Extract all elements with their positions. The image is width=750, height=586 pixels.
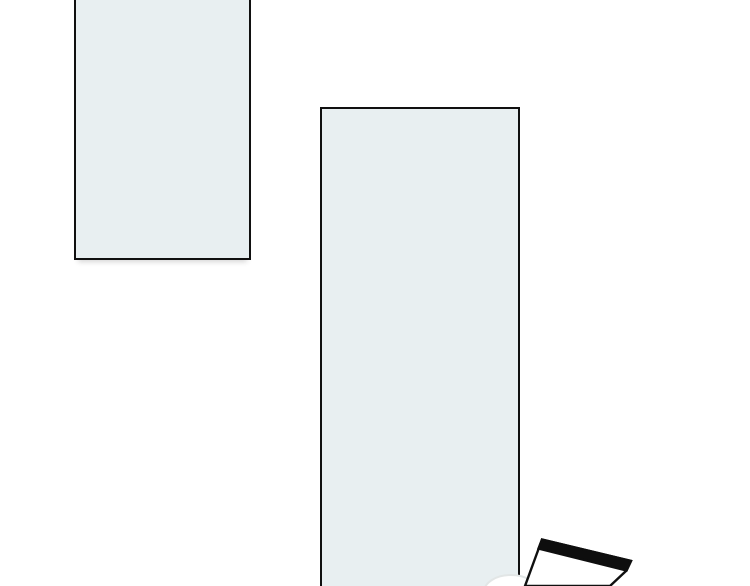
comic-page bbox=[0, 0, 750, 586]
overlay-art bbox=[0, 0, 750, 586]
